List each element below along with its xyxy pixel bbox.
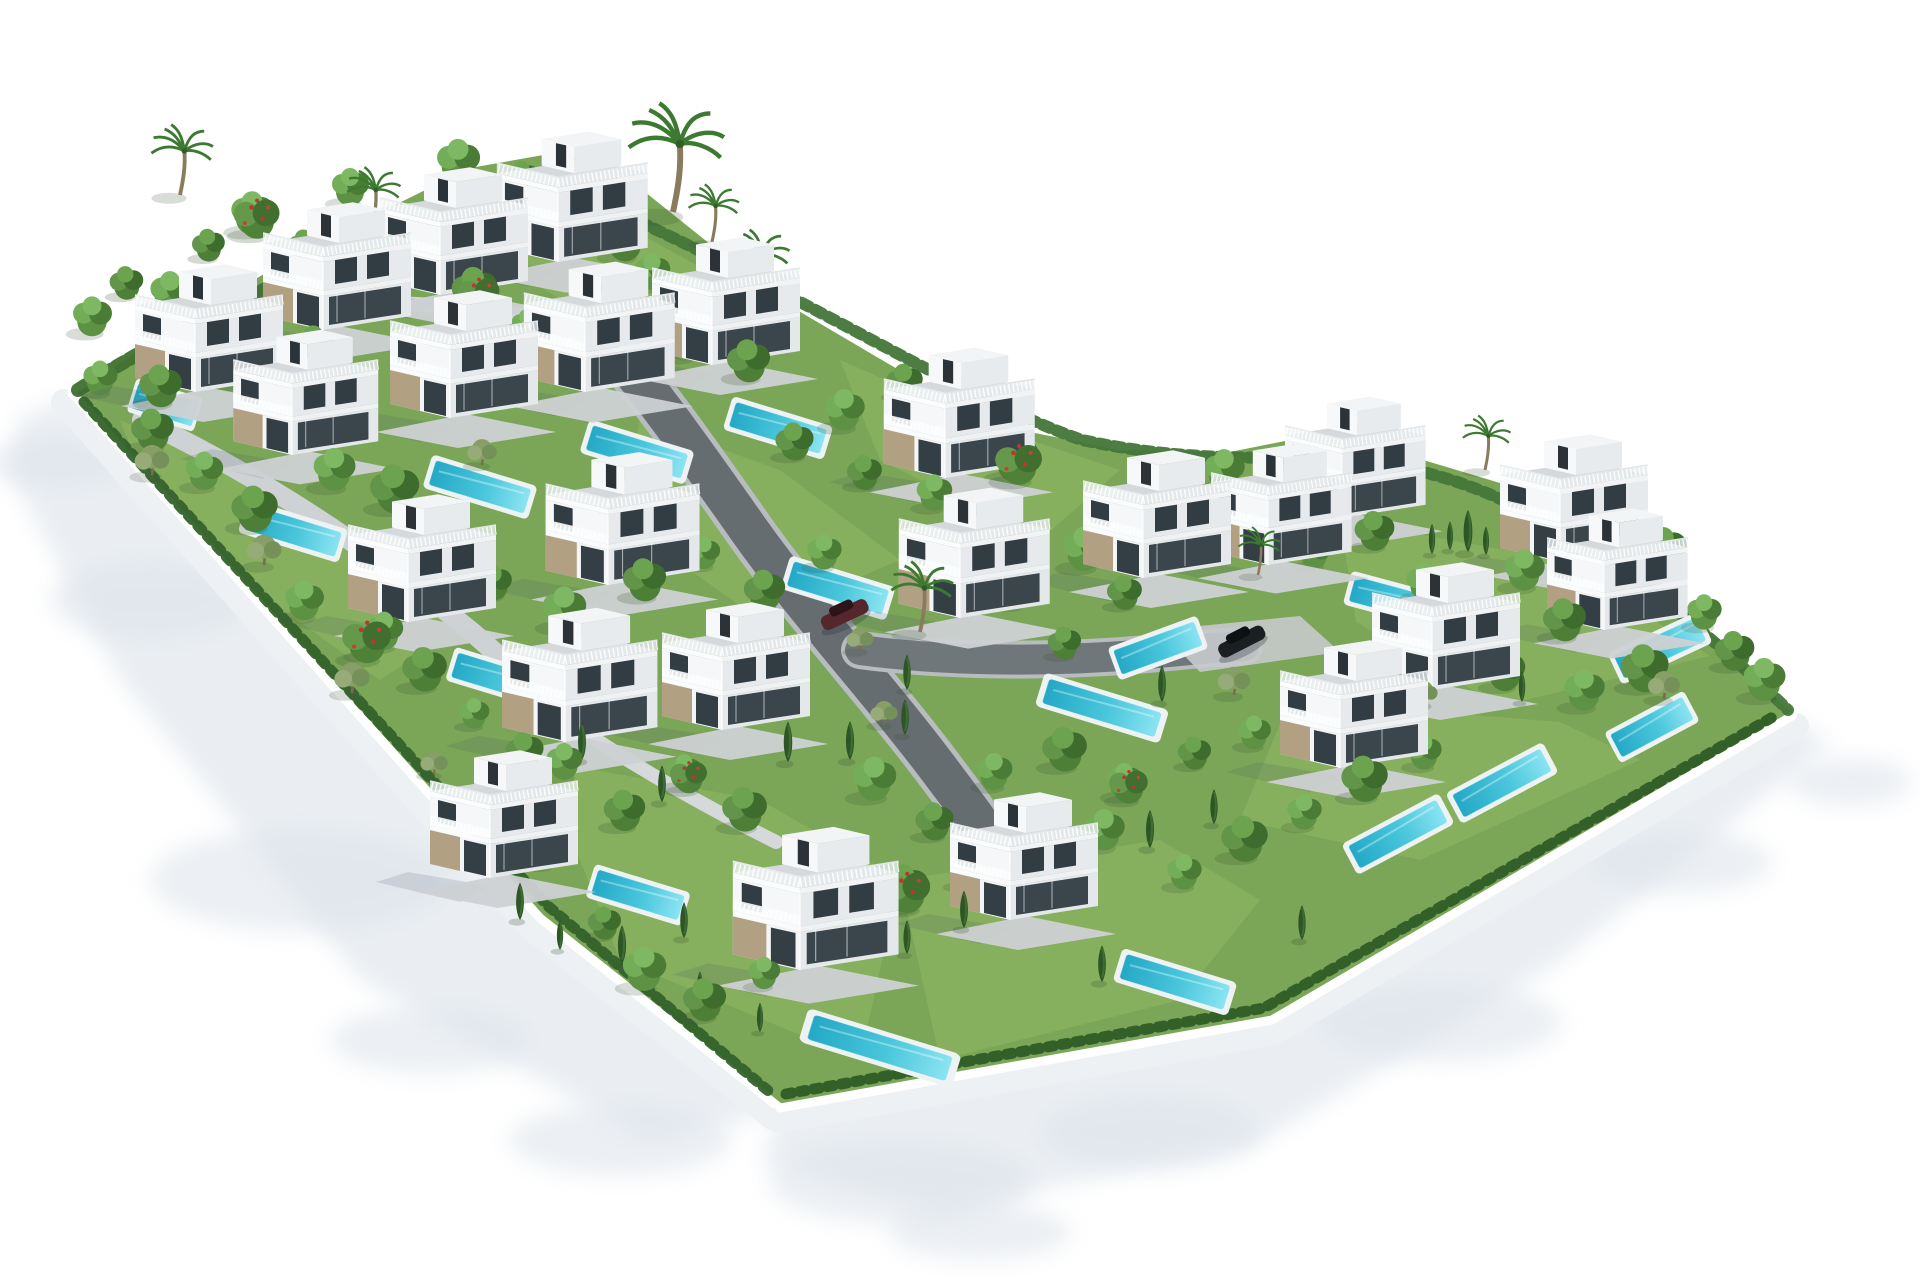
palm-tree: [151, 125, 213, 204]
tree: [66, 296, 112, 340]
tree: [187, 229, 225, 264]
tree-shadow: [330, 1006, 530, 1074]
tree-shadow: [1040, 1094, 1260, 1170]
render-canvas: [0, 0, 1920, 1280]
villa-development-render: [0, 0, 1920, 1280]
tree-shadow: [888, 1204, 1072, 1260]
tree-shadow: [508, 1104, 732, 1176]
tree-shadow: [1788, 758, 1912, 806]
